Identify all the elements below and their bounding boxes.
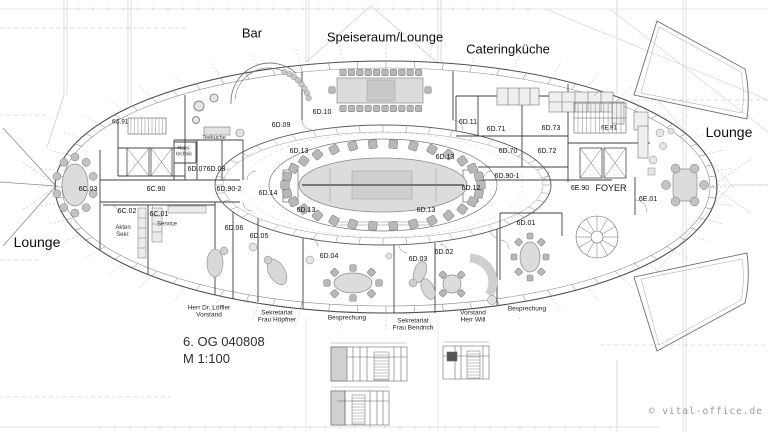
dining-table bbox=[337, 78, 423, 103]
grid-lines bbox=[0, 0, 768, 432]
kitchen-fixtures bbox=[497, 88, 648, 158]
drawing-title: 6. OG 040808 M 1:100 bbox=[183, 334, 265, 368]
drawing-title-scale: M 1:100 bbox=[183, 351, 265, 368]
teekueche-counter bbox=[204, 127, 244, 137]
bar-counter bbox=[193, 63, 297, 123]
left-lounge-table bbox=[62, 164, 88, 206]
floor-plan-drawing bbox=[0, 0, 768, 432]
right-lounge-table bbox=[648, 128, 697, 201]
stair-treads bbox=[131, 103, 621, 424]
watermark-text: © vital-office.de bbox=[649, 406, 763, 417]
elevation-details bbox=[331, 342, 489, 425]
floor-plan-page: BarSpeiseraum/LoungeCateringkücheLoungeL… bbox=[0, 0, 768, 432]
center-conference-table bbox=[299, 158, 467, 212]
drawing-title-line1: 6. OG 040808 bbox=[183, 334, 265, 351]
